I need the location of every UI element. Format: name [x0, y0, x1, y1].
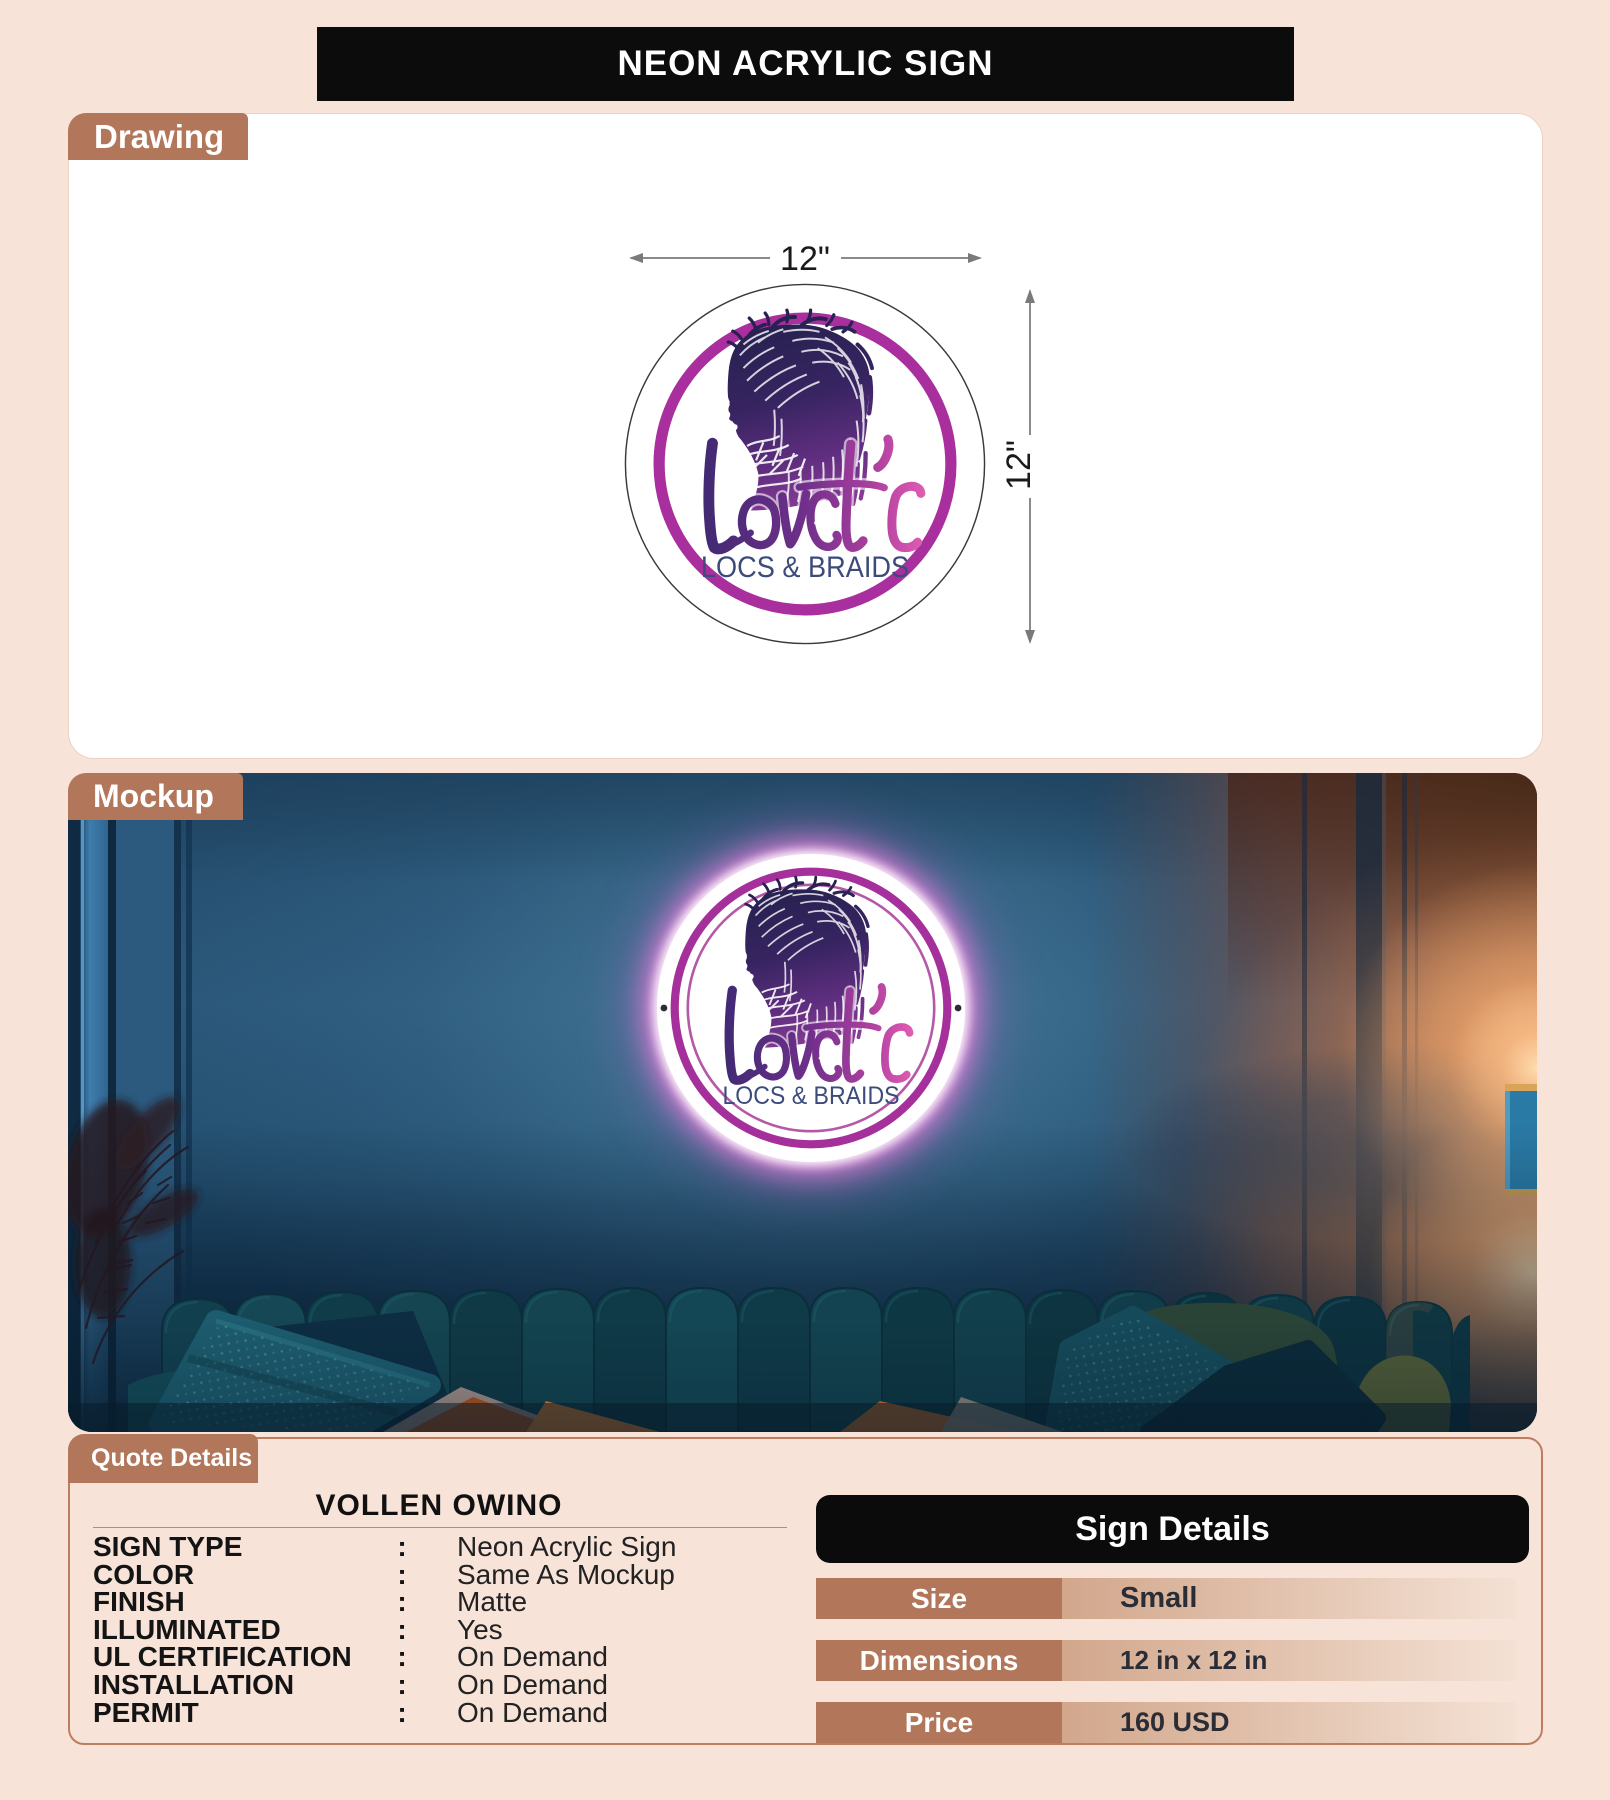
svg-text:12": 12" [1000, 440, 1038, 490]
svg-text:12": 12" [780, 240, 830, 278]
